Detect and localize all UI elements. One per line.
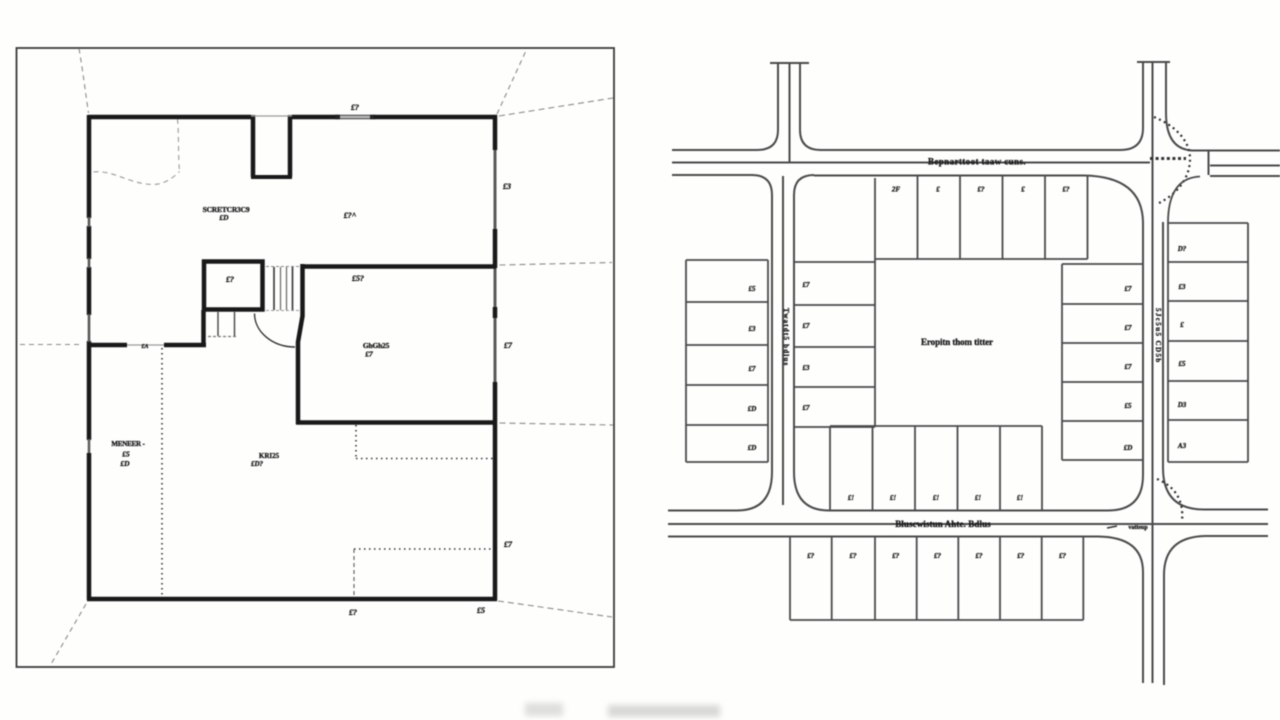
svg-text:£7: £7 (748, 365, 757, 373)
svg-text:£?: £? (977, 186, 986, 194)
svg-text:£5: £5 (121, 450, 130, 459)
svg-text:vatteup: vatteup (1128, 525, 1148, 531)
svg-text:£!: £! (1016, 494, 1024, 502)
svg-text:£D: £D (747, 444, 757, 452)
svg-text:A3: A3 (1177, 442, 1187, 450)
svg-text:£?: £? (348, 608, 357, 617)
svg-text:£7: £7 (503, 341, 513, 350)
svg-text:£?^: £?^ (343, 211, 357, 220)
svg-text:£3: £3 (1178, 283, 1187, 291)
svg-text:£D: £D (1123, 444, 1133, 452)
svg-text:Bluscwistun Ahte. Bdlus: Bluscwistun Ahte. Bdlus (895, 519, 991, 529)
svg-text:£!: £! (847, 494, 855, 502)
svg-text:£?: £? (225, 275, 234, 284)
svg-text:Twatdt5 bdlus: Twatdt5 bdlus (782, 308, 790, 366)
svg-text:£5: £5 (1124, 402, 1133, 410)
svg-text:£?: £? (806, 552, 815, 560)
svg-text:£7: £7 (802, 281, 811, 289)
svg-text:£?: £? (1016, 552, 1025, 560)
svg-text:£: £ (1020, 186, 1025, 194)
svg-text:£?: £? (1058, 552, 1067, 560)
svg-text:£5: £5 (476, 606, 485, 615)
svg-text:£7: £7 (503, 540, 513, 549)
svg-text:£7: £7 (802, 404, 811, 412)
svg-text:£D: £D (218, 213, 229, 222)
svg-text:£7: £7 (1124, 285, 1133, 293)
svg-text:£D: £D (747, 405, 757, 413)
svg-text:£5?: £5? (351, 274, 364, 283)
svg-text:£!: £! (889, 494, 897, 502)
svg-text:£!: £! (974, 494, 982, 502)
svg-text:Bepnarttoot taaw cuns.: Bepnarttoot taaw cuns. (928, 157, 1026, 167)
svg-text:£7: £7 (1124, 363, 1133, 371)
svg-text:KRI25: KRI25 (259, 452, 280, 460)
svg-text:£?: £? (849, 552, 858, 560)
svg-text:£!: £! (932, 494, 940, 502)
svg-text:Eropitn thom titter: Eropitn thom titter (921, 337, 993, 347)
svg-text:£?: £? (933, 552, 942, 560)
svg-text:£A: £A (140, 344, 148, 350)
svg-text:£3: £3 (802, 364, 811, 372)
svg-text:£: £ (1179, 321, 1184, 329)
svg-text:D3: D3 (1177, 401, 1187, 409)
svg-text:MENEER -: MENEER - (111, 440, 145, 448)
svg-text:£3: £3 (748, 325, 757, 333)
svg-text:£?: £? (891, 552, 900, 560)
svg-text:£7: £7 (802, 322, 811, 330)
svg-text:£7: £7 (364, 350, 373, 359)
svg-text:£D?: £D? (250, 460, 264, 468)
svg-text:£D: £D (119, 459, 130, 468)
svg-text:£?: £? (350, 103, 359, 112)
svg-text:£?: £? (975, 552, 984, 560)
svg-text:£: £ (935, 186, 940, 194)
svg-text:£5: £5 (748, 285, 757, 293)
svg-text:5Jc5u5 CD5b: 5Jc5u5 CD5b (1154, 308, 1162, 364)
svg-text:D?: D? (1177, 245, 1187, 253)
svg-text:£5: £5 (1178, 360, 1187, 368)
svg-text:£7: £7 (1124, 324, 1133, 332)
svg-text:£3: £3 (502, 182, 511, 191)
svg-text:£?: £? (1062, 186, 1071, 194)
svg-text:2F: 2F (891, 186, 901, 194)
